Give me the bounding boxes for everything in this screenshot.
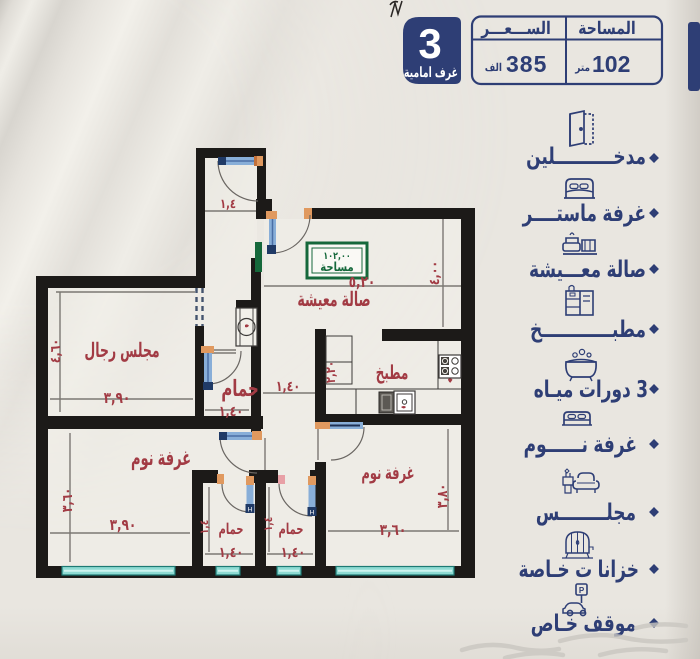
svg-text:P: P	[579, 586, 585, 595]
svg-text:3: 3	[418, 20, 441, 67]
svg-text:102: 102	[592, 51, 630, 77]
svg-text:H: H	[248, 507, 253, 514]
svg-text:385: 385	[506, 51, 547, 77]
svg-text:H: H	[310, 510, 315, 517]
